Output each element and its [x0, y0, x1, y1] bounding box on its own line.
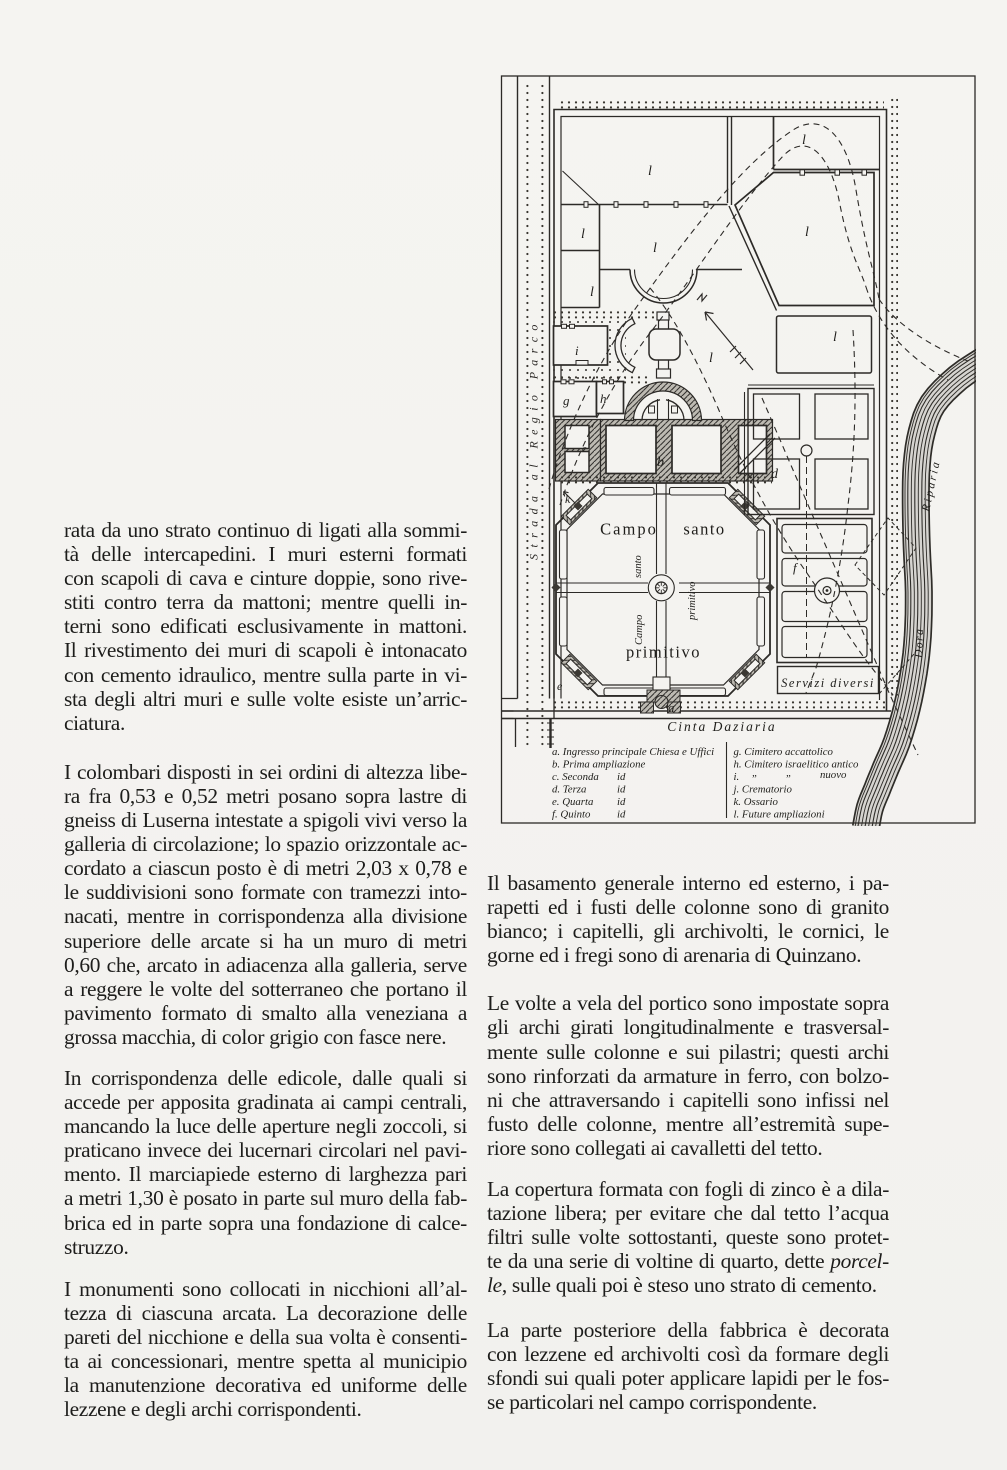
svg-text:l: l: [802, 133, 806, 148]
svg-text:l. Future ampliazioni: l. Future ampliazioni: [734, 809, 825, 821]
svg-text:a. Ingresso principale Chiesa: a. Ingresso principale Chiesa e Uffici: [552, 746, 714, 758]
svg-text:„: „: [752, 767, 758, 779]
svg-text:k. Ossario: k. Ossario: [734, 796, 779, 808]
svg-text:l: l: [648, 164, 652, 179]
svg-text:l: l: [590, 285, 594, 300]
svg-text:id: id: [617, 771, 626, 783]
svg-text:f: f: [793, 560, 799, 575]
svg-text:S t r a d a a l R e g i o: S t r a d a a l R e g i o P a r c o: [527, 323, 541, 560]
svg-text:g. Cimitero accattolico: g. Cimitero accattolico: [734, 746, 834, 758]
svg-text:h: h: [600, 391, 607, 406]
svg-text:l: l: [805, 225, 809, 240]
svg-text:l: l: [581, 227, 585, 242]
svg-text:l: l: [653, 241, 657, 256]
svg-text:b. Prima ampliazione: b. Prima ampliazione: [552, 759, 645, 771]
svg-text:k: k: [565, 492, 571, 506]
svg-text:i: i: [575, 343, 579, 358]
svg-text:f. Quinto: f. Quinto: [552, 809, 591, 821]
svg-text:Servizi diversi: Servizi diversi: [781, 676, 875, 690]
svg-text:id: id: [617, 796, 626, 808]
svg-text:c: c: [582, 444, 587, 455]
svg-text:e: e: [557, 679, 563, 693]
svg-text:Campo: Campo: [600, 520, 658, 539]
svg-text:primitivo: primitivo: [687, 582, 698, 622]
svg-text:i.: i.: [734, 771, 740, 783]
svg-text:id: id: [617, 784, 626, 796]
svg-text:b: b: [657, 455, 664, 470]
svg-text:c. Seconda: c. Seconda: [552, 771, 599, 783]
svg-text:d: d: [771, 467, 779, 482]
svg-text:a: a: [668, 700, 675, 715]
svg-text:Dora: Dora: [913, 627, 926, 659]
svg-text:santo: santo: [683, 520, 725, 539]
svg-text:l: l: [709, 351, 713, 366]
svg-text:j. Crematorio: j. Crematorio: [732, 784, 793, 796]
svg-text:d. Terza: d. Terza: [552, 784, 586, 796]
svg-text:e. Quarta: e. Quarta: [552, 796, 593, 808]
svg-text:l: l: [833, 330, 837, 345]
svg-text:Cinta Daziaria: Cinta Daziaria: [667, 719, 776, 734]
svg-text:„: „: [786, 767, 792, 779]
svg-text:Campo: Campo: [634, 615, 645, 645]
svg-text:id: id: [617, 809, 626, 821]
svg-text:nuovo: nuovo: [820, 769, 847, 781]
svg-text:g: g: [563, 393, 570, 408]
svg-text:santo: santo: [633, 555, 644, 578]
